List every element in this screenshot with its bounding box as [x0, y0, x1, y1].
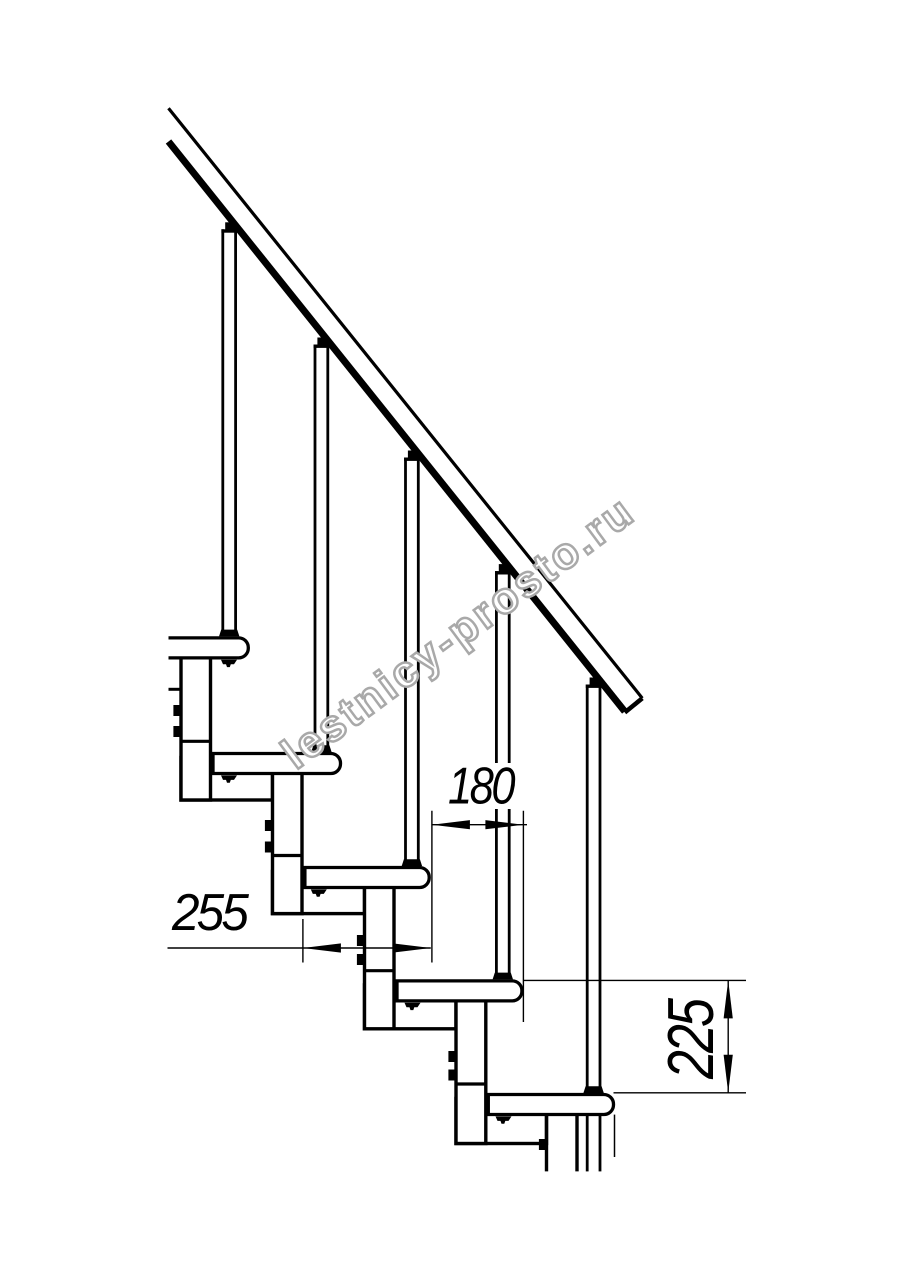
svg-text:180: 180 [448, 758, 516, 816]
svg-text:225: 225 [654, 997, 727, 1080]
svg-text:255: 255 [171, 884, 250, 942]
